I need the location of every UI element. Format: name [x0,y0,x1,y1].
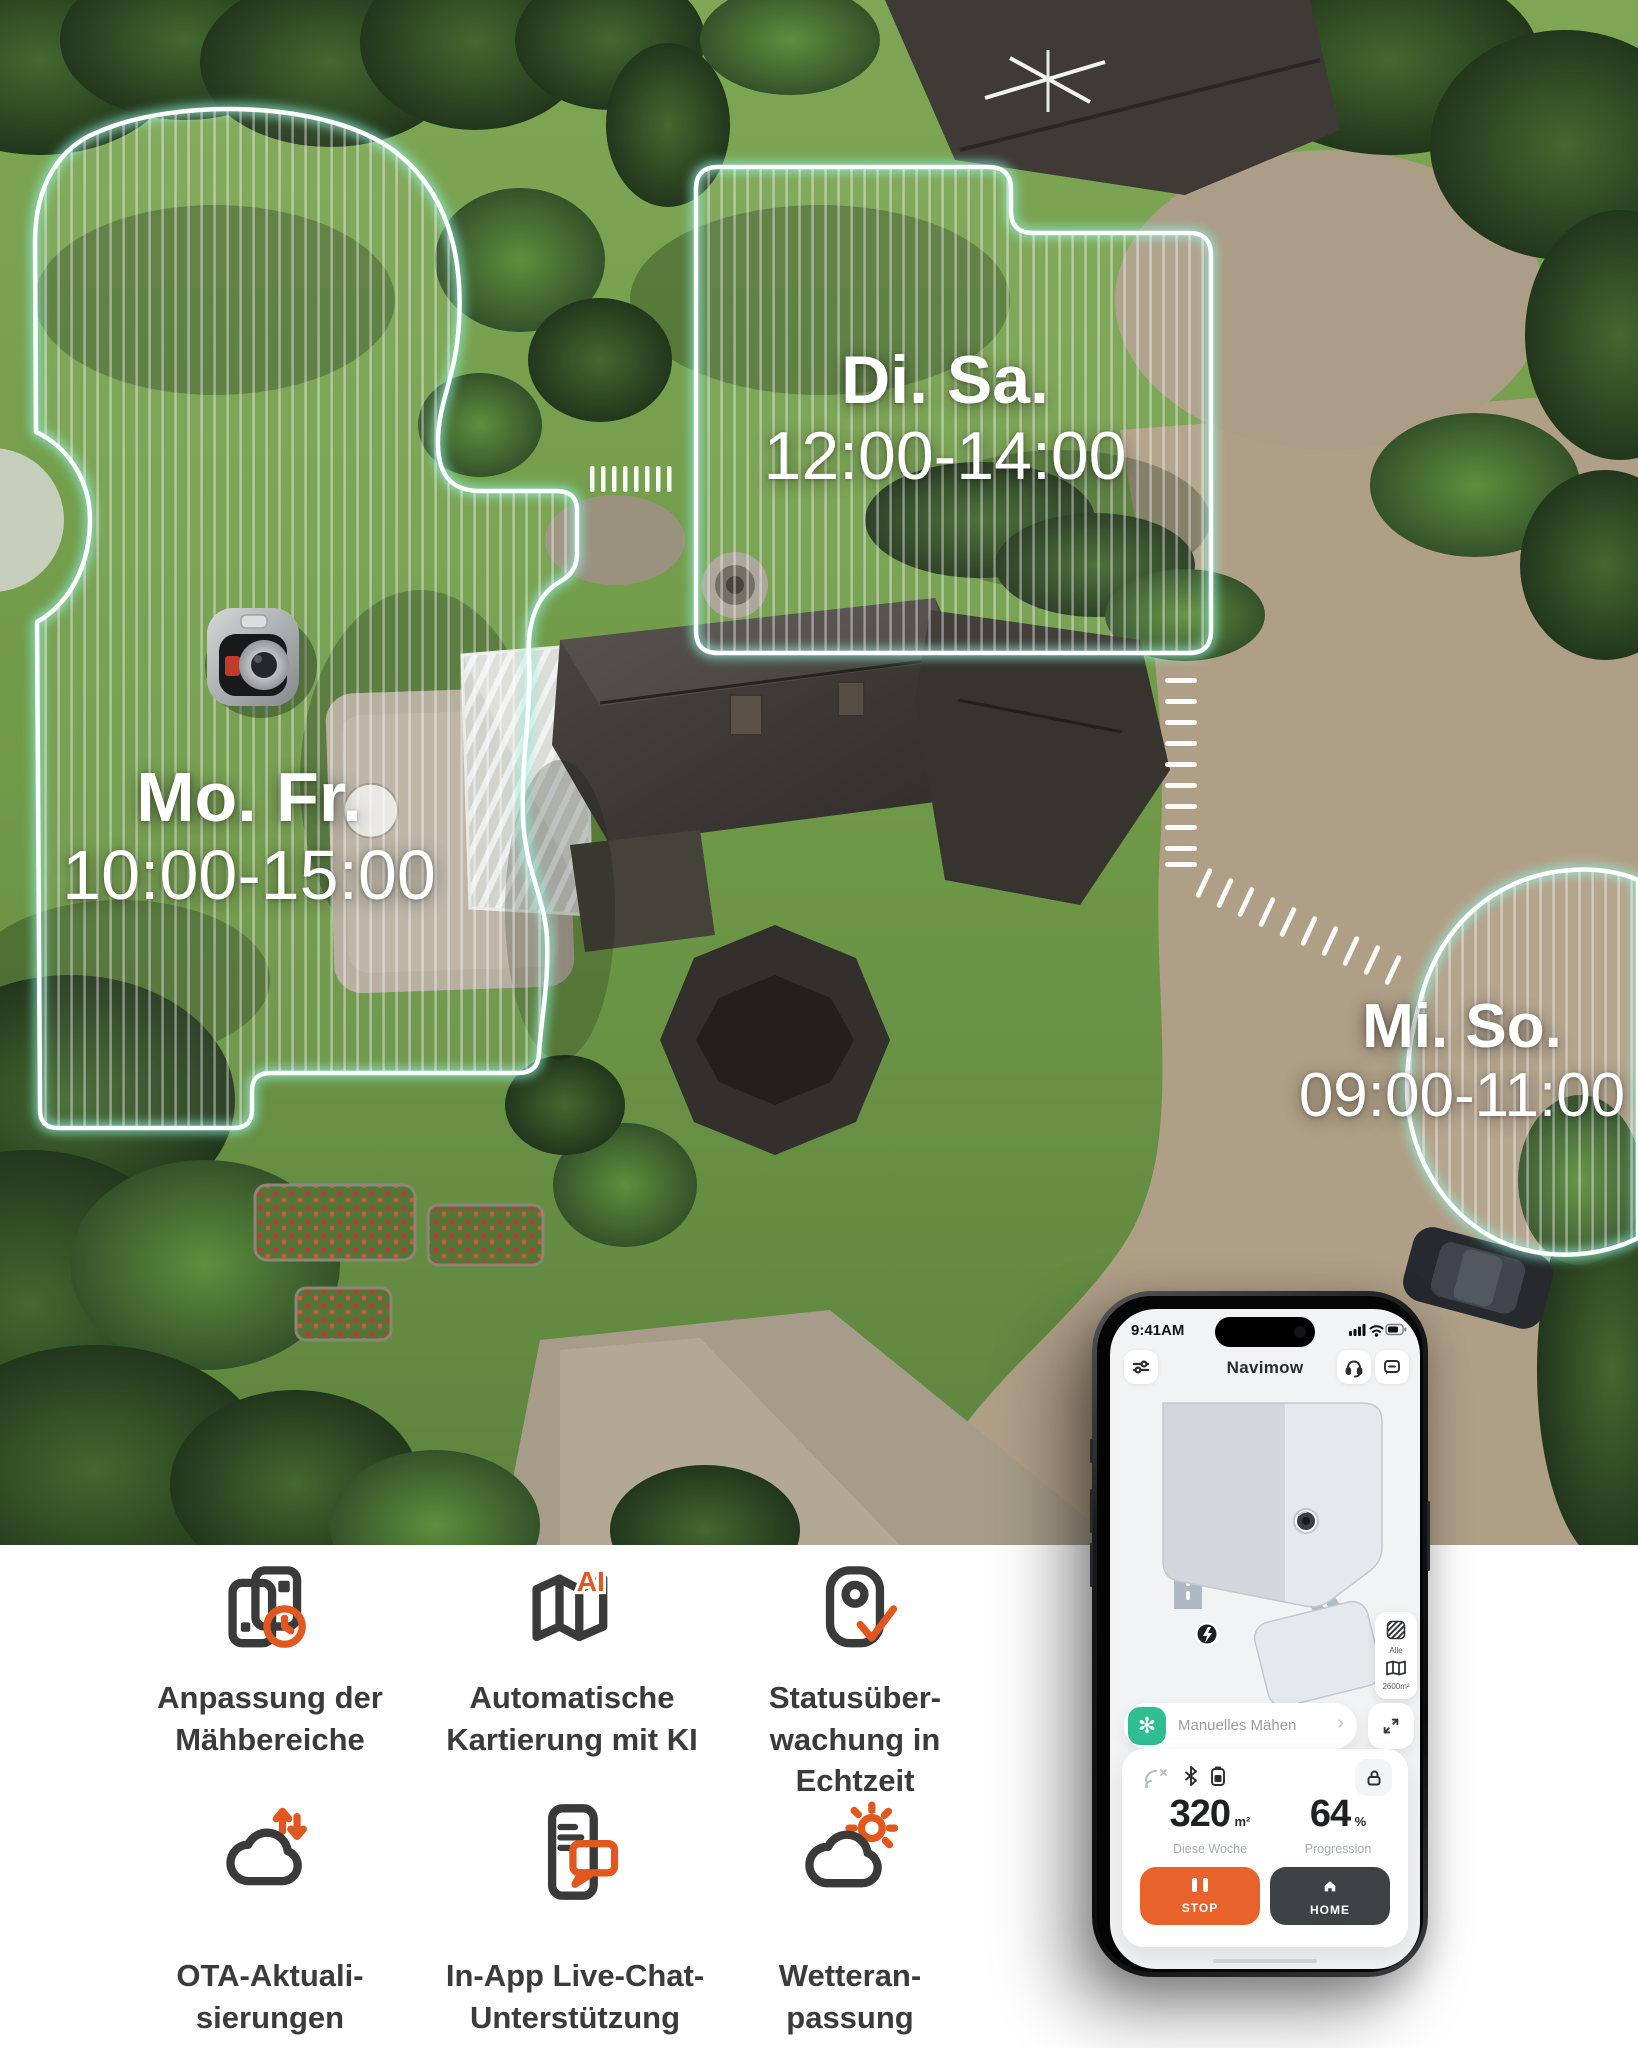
home-button-label: HOME [1270,1903,1390,1917]
mute-switch [1090,1439,1093,1463]
dynamic-island [1215,1317,1315,1347]
pause-icon [1192,1878,1208,1892]
robot-battery-icon [1210,1765,1226,1792]
volume-up-button [1090,1489,1093,1533]
chevron-right-icon: › [1337,1712,1344,1735]
message-button[interactable] [1375,1350,1409,1384]
home-icon [1321,1878,1339,1894]
chat-icon [1382,1357,1402,1377]
zone-time: 09:00-11:00 [1272,1061,1638,1130]
svg-text:AI: AI [577,1566,605,1597]
weekly-area-value: 320 [1170,1793,1230,1835]
weather-cloud-icon [798,1800,902,1909]
feature-line: Echtzeit [675,1760,1035,1802]
status-icons [1349,1322,1407,1342]
feature-line: Statusüber- [675,1677,1035,1719]
app-title: Navimow [1110,1358,1420,1378]
expand-icon [1381,1716,1401,1736]
stop-button-label: STOP [1140,1901,1260,1915]
feature-line: passung [670,1997,1030,2039]
robot-marker [1293,1508,1319,1534]
marketing-image: Di. Sa. 12:00-14:00 Mo. Fr. 10:00-15:00 … [0,0,1638,2048]
map-layer-all-label: Alle [1375,1646,1417,1655]
support-button[interactable] [1337,1350,1371,1384]
progress-unit: % [1355,1814,1367,1829]
camera-icon [1294,1326,1306,1338]
hatch-area-icon [1386,1620,1406,1640]
map-layer-all-button[interactable]: Alle [1375,1618,1417,1658]
status-time: 9:41AM [1131,1322,1184,1339]
mode-label: Manuelles Mähen [1178,1717,1296,1734]
stop-button[interactable]: STOP [1140,1867,1260,1925]
feature-weather: Wetteran- passung [670,1800,1030,2038]
zone-time: 12:00-14:00 [700,418,1190,494]
zone-days: Di. Sa. [700,342,1190,418]
bluetooth-icon [1184,1765,1198,1792]
map-layer-area-button[interactable]: 2600m² [1375,1658,1417,1694]
status-monitor-icon [803,1560,907,1669]
progress-value: 64 [1310,1793,1350,1835]
status-card: 320 m² Diese Woche 64 % Progression STOP [1122,1749,1408,1947]
feature-label: Wetteran- passung [670,1955,1030,2038]
live-chat-icon [523,1800,627,1909]
map-icon [1385,1660,1407,1676]
rtk-signal-icon [1143,1767,1169,1794]
wifi-icon [1371,1326,1383,1332]
map-layer-panel: Alle 2600m² [1375,1612,1417,1699]
map-layer-area-label: 2600m² [1375,1682,1417,1691]
app-screen: 9:41AM [1110,1309,1420,1969]
phone-mockup: 9:41AM [1092,1291,1428,1977]
phone-bezel: 9:41AM [1097,1296,1423,1972]
feature-status-monitoring: Statusüber- wachung in Echtzeit [675,1560,1035,1802]
feature-line: wachung in [675,1719,1035,1761]
progress-stat: 64 % Progression [1268,1793,1408,1856]
zone-time: 10:00-15:00 [10,836,488,914]
lock-icon [1364,1768,1384,1788]
weekly-area-stat: 320 m² Diese Woche [1140,1793,1280,1856]
zone-label-mo-fr: Mo. Fr. 10:00-15:00 [10,758,488,915]
battery-icon [1386,1325,1406,1335]
cell-signal-icon [1349,1324,1366,1336]
lock-button[interactable] [1355,1759,1392,1796]
map-clock-icon [218,1560,322,1669]
charging-station-marker [1195,1622,1219,1646]
progress-caption: Progression [1268,1842,1408,1856]
home-indicator[interactable] [1213,1959,1317,1963]
mode-pill[interactable]: ✻ Manuelles Mähen › [1124,1703,1357,1749]
headset-icon [1343,1356,1365,1378]
map-zone-secondary [1251,1598,1384,1710]
weekly-area-caption: Diese Woche [1140,1842,1280,1856]
ai-map-icon: AI [520,1560,624,1669]
zone-label-mi-so: Mi. So. 09:00-11:00 [1272,992,1638,1131]
ota-cloud-icon [218,1800,322,1909]
weekly-area-unit: m² [1234,1814,1250,1829]
home-button[interactable]: HOME [1270,1867,1390,1925]
volume-down-button [1090,1543,1093,1587]
power-button [1427,1501,1430,1571]
feature-label: Statusüber- wachung in Echtzeit [675,1677,1035,1802]
map-expand-button[interactable] [1368,1703,1414,1749]
zone-days: Mi. So. [1272,992,1638,1061]
mowing-blades-icon: ✻ [1128,1707,1166,1745]
zone-days: Mo. Fr. [10,758,488,836]
feature-line: Wetteran- [670,1955,1030,1997]
zone-label-di-sa: Di. Sa. 12:00-14:00 [700,342,1190,494]
